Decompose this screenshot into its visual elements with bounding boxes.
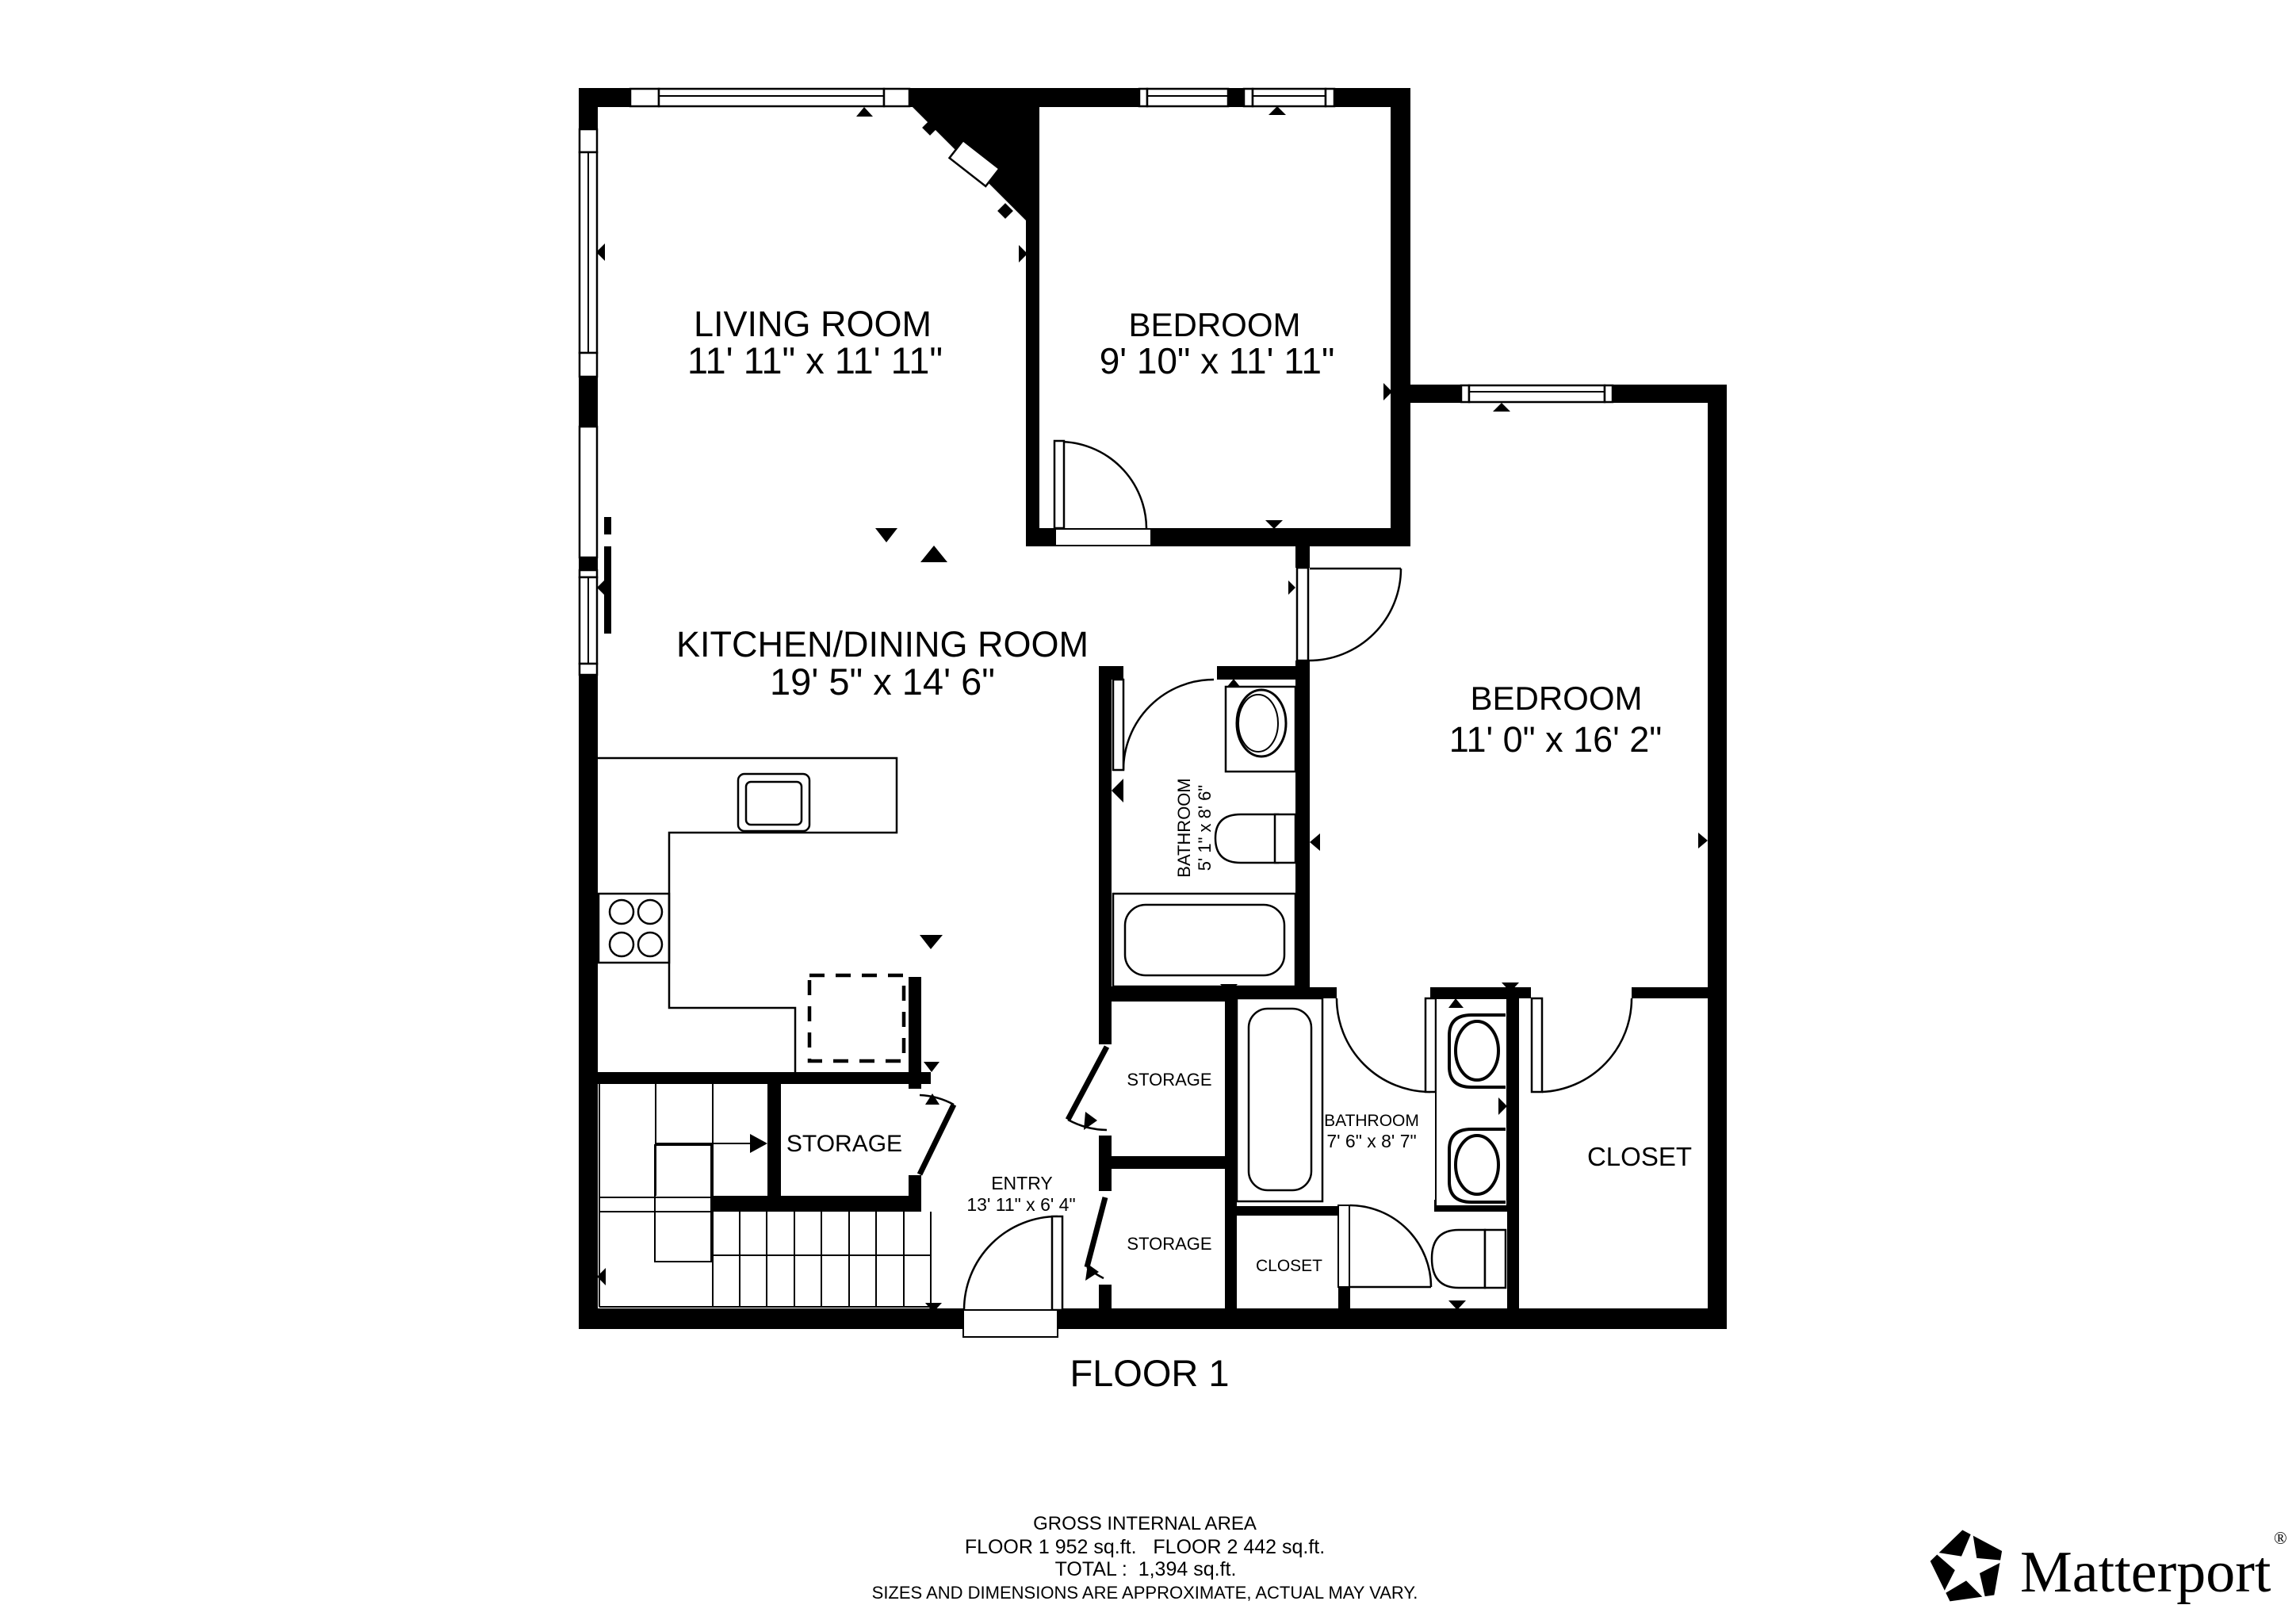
svg-text:STORAGE: STORAGE — [1127, 1070, 1211, 1090]
svg-text:Matterport: Matterport — [2020, 1540, 2271, 1605]
svg-text:9' 10" x 11' 11": 9' 10" x 11' 11" — [1100, 340, 1335, 381]
svg-text:BATHROOM: BATHROOM — [1174, 778, 1194, 877]
svg-text:FLOOR 1: FLOOR 1 — [1070, 1352, 1229, 1394]
svg-text:5' 1" x 8' 6": 5' 1" x 8' 6" — [1195, 785, 1215, 871]
svg-text:®: ® — [2274, 1528, 2287, 1548]
svg-text:BEDROOM: BEDROOM — [1128, 306, 1300, 343]
svg-text:LIVING ROOM: LIVING ROOM — [694, 304, 932, 344]
svg-text:BATHROOM: BATHROOM — [1324, 1112, 1419, 1130]
svg-text:GROSS INTERNAL AREA: GROSS INTERNAL AREA — [1033, 1513, 1257, 1534]
svg-text:11' 0" x 16' 2": 11' 0" x 16' 2" — [1449, 719, 1662, 760]
svg-text:13' 11" x 6' 4": 13' 11" x 6' 4" — [966, 1194, 1075, 1215]
svg-text:FLOOR 1 952 sq.ft. FLOOR 2 4: FLOOR 1 952 sq.ft. FLOOR 2 442 sq.ft. — [965, 1536, 1325, 1558]
svg-text:STORAGE: STORAGE — [1127, 1234, 1211, 1254]
svg-text:KITCHEN/DINING ROOM: KITCHEN/DINING ROOM — [676, 624, 1089, 665]
svg-text:CLOSET: CLOSET — [1587, 1142, 1692, 1171]
svg-text:STORAGE: STORAGE — [786, 1131, 902, 1157]
svg-text:7' 6" x 8' 7": 7' 6" x 8' 7" — [1326, 1131, 1416, 1151]
svg-text:SIZES AND DIMENSIONS ARE APPRO: SIZES AND DIMENSIONS ARE APPROXIMATE, AC… — [872, 1583, 1418, 1603]
svg-text:11' 11" x 11' 11": 11' 11" x 11' 11" — [687, 339, 943, 381]
svg-text:19' 5" x 14' 6": 19' 5" x 14' 6" — [770, 661, 995, 703]
svg-text:ENTRY: ENTRY — [991, 1173, 1053, 1193]
svg-text:CLOSET: CLOSET — [1256, 1257, 1322, 1275]
svg-text:BEDROOM: BEDROOM — [1470, 680, 1642, 717]
svg-text:TOTAL : 1,394 sq.ft.: TOTAL : 1,394 sq.ft. — [1055, 1558, 1237, 1580]
